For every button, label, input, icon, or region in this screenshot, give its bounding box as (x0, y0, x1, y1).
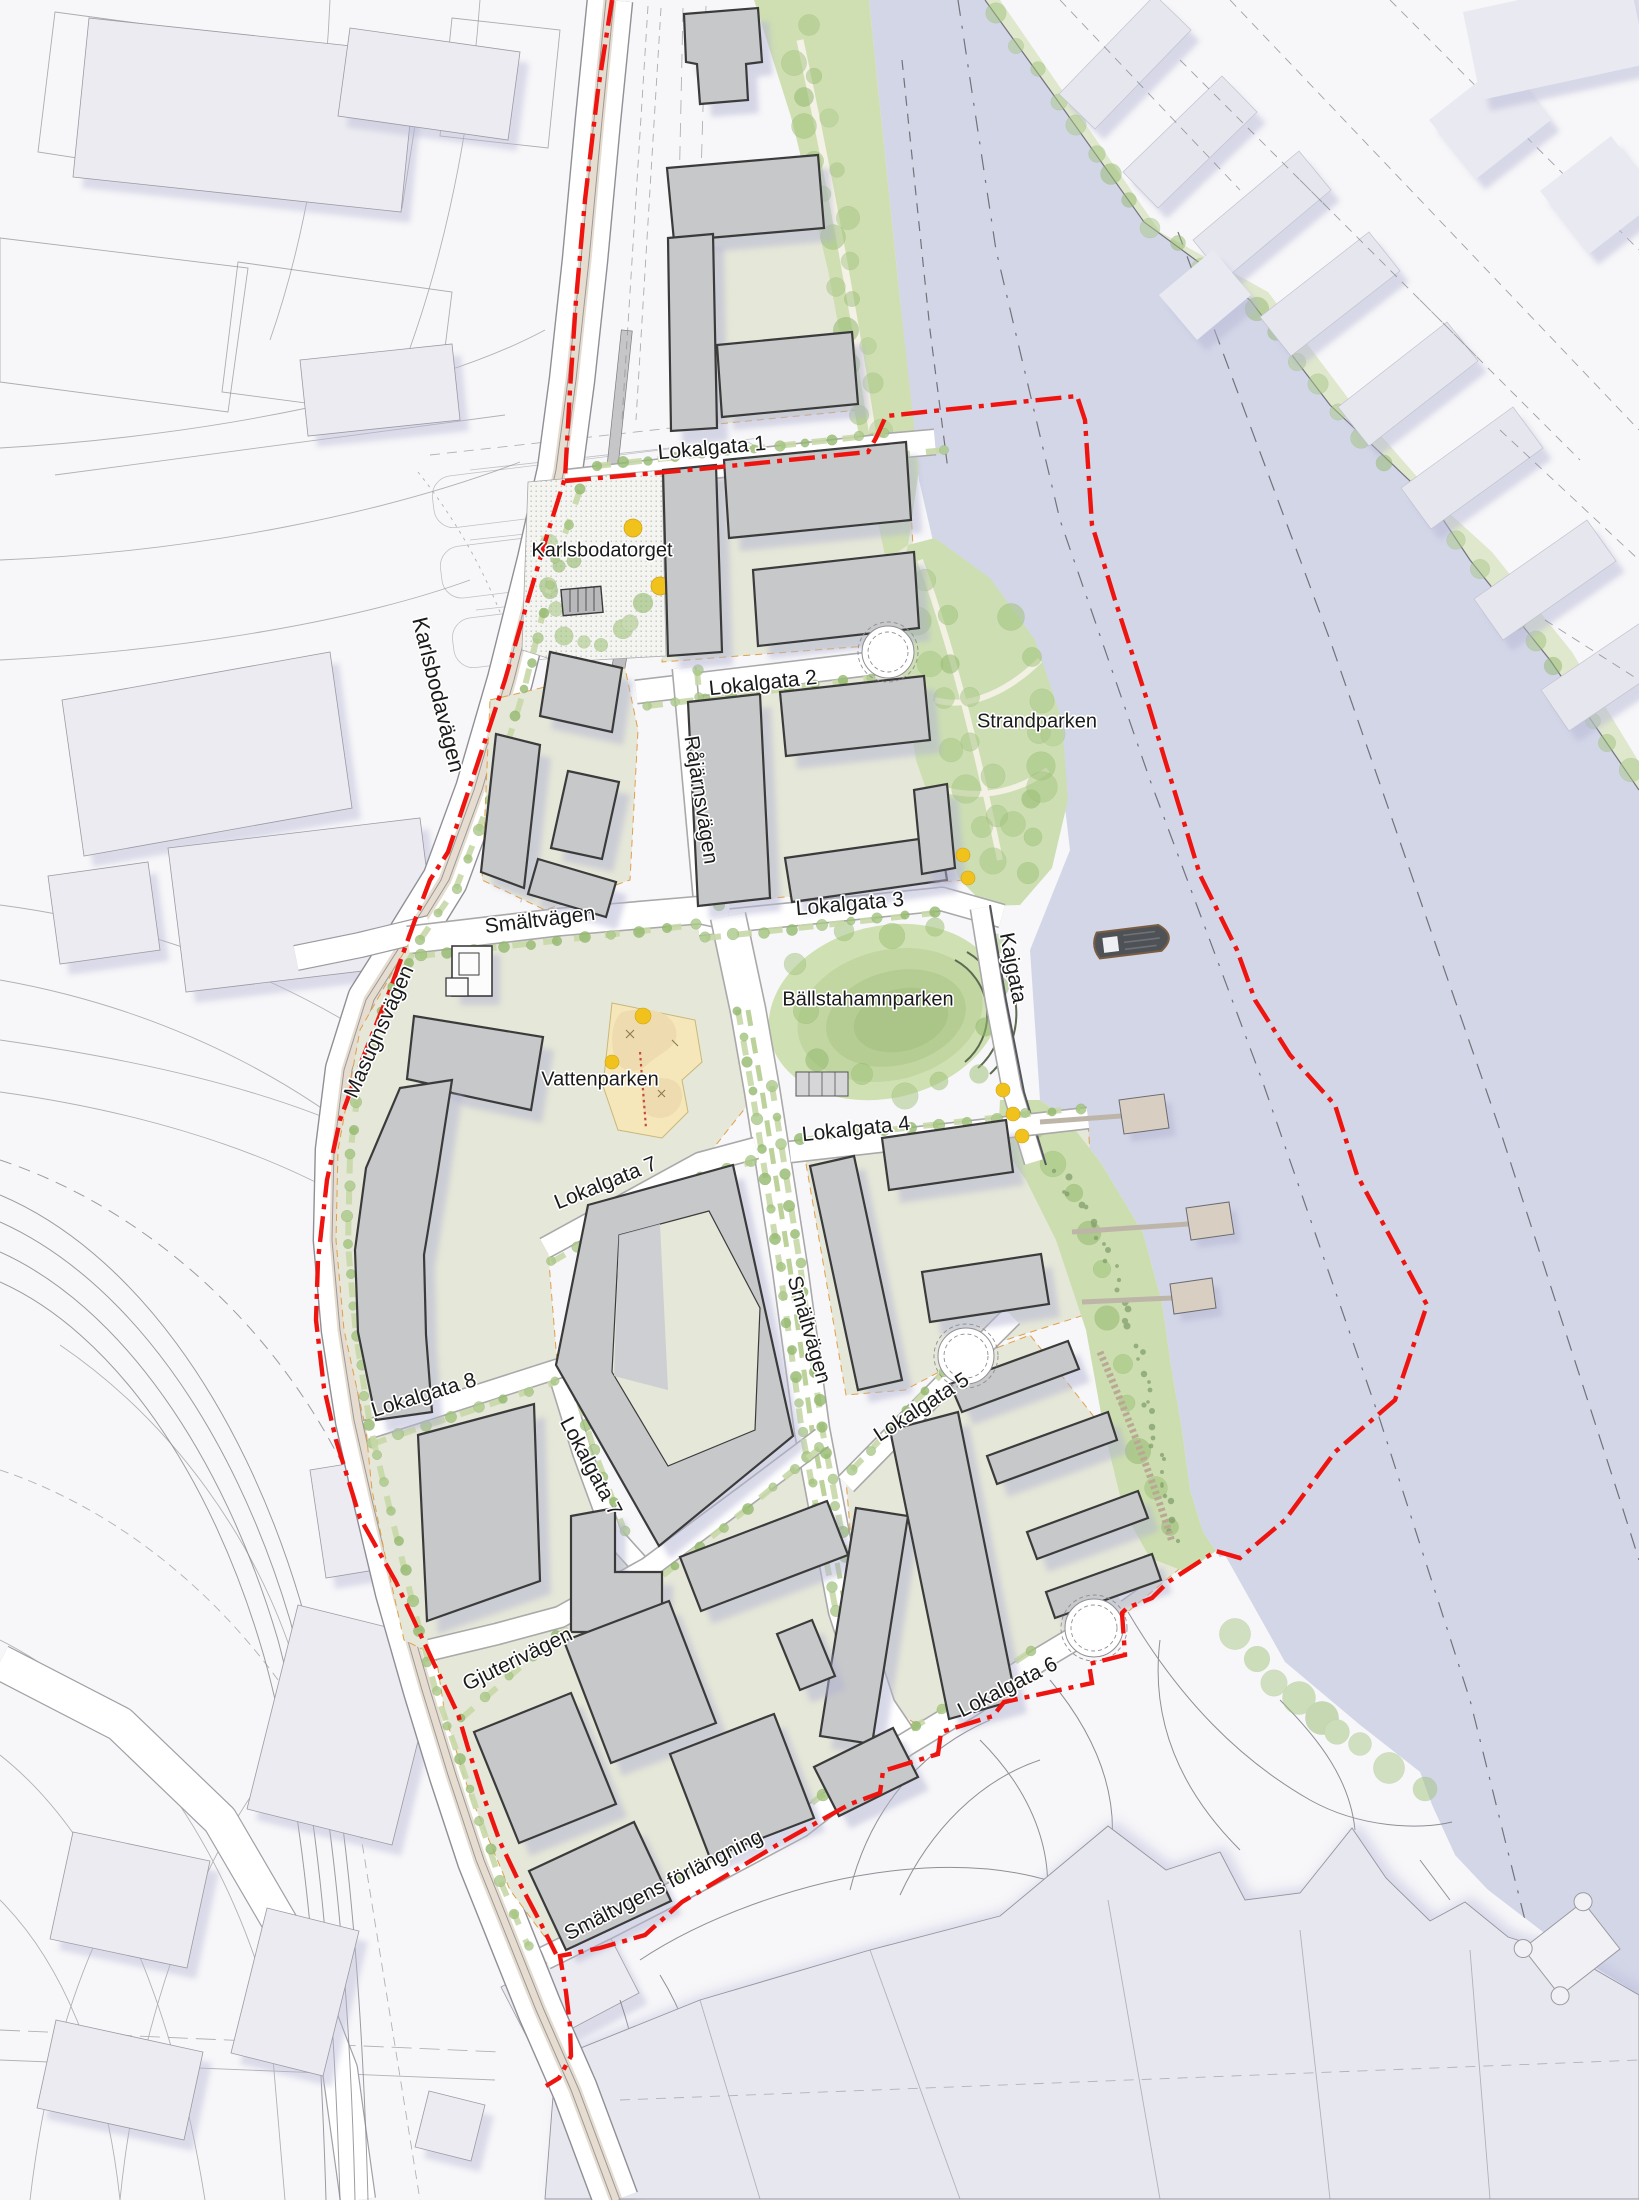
svg-text:Bällstahamnparken: Bällstahamnparken (782, 988, 953, 1010)
svg-text:Vattenparken: Vattenparken (541, 1068, 659, 1090)
svg-text:Karlsbodatorget: Karlsbodatorget (531, 539, 673, 561)
svg-text:Strandparken: Strandparken (977, 710, 1097, 732)
